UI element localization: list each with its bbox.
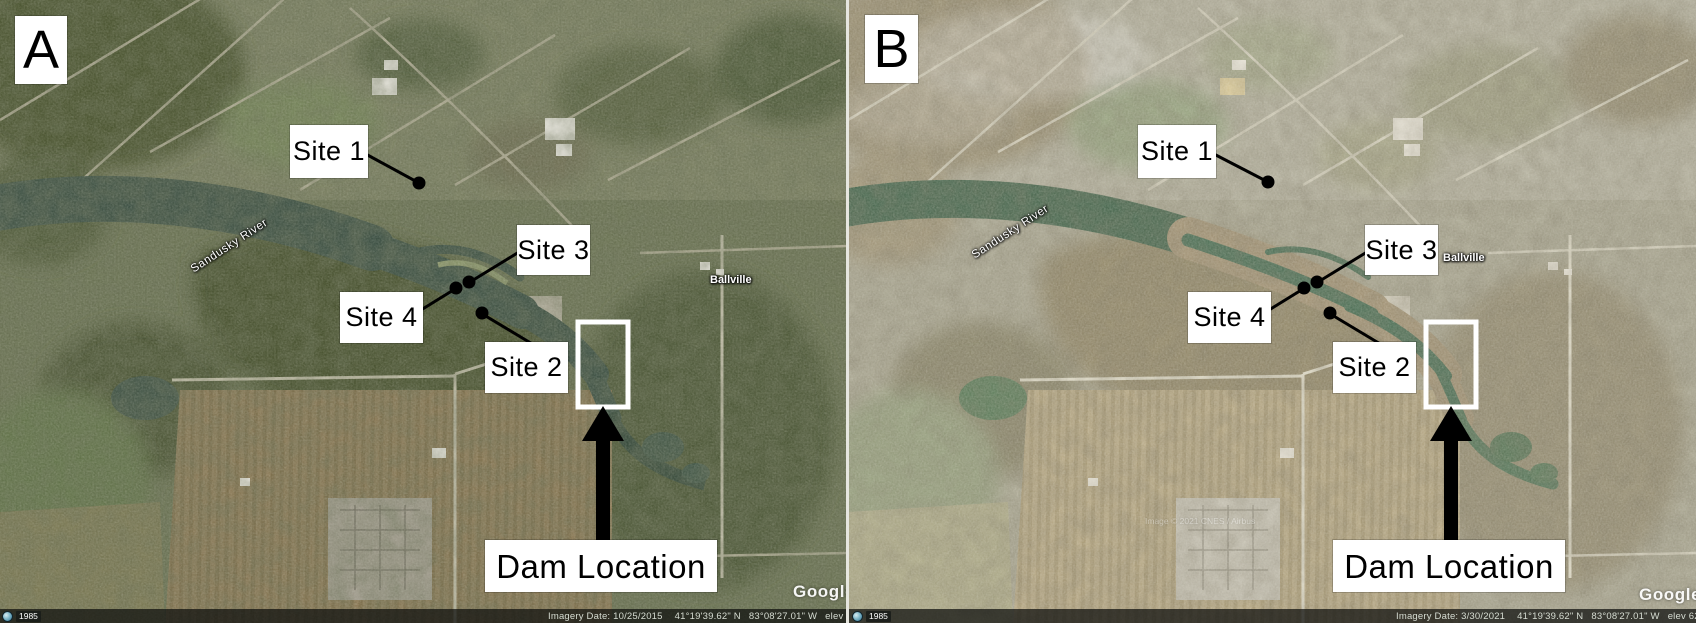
history-badge-b: 1985 <box>852 611 891 622</box>
latitude-b: 41°19'39.62" N <box>1517 611 1583 622</box>
panel-b: Sandusky River Ballville Image © 2021 CN… <box>848 0 1696 627</box>
panel-divider <box>846 0 849 627</box>
dam-location-label-b: Dam Location <box>1333 540 1565 592</box>
history-year-b: 1985 <box>866 611 891 622</box>
longitude-a: 83°08'27.01" W <box>749 611 817 622</box>
latitude-a: 41°19'39.62" N <box>675 611 741 622</box>
bottom-margin-strip <box>0 623 1696 627</box>
comparison-figure: Sandusky River Ballville Imagery Date: 1… <box>0 0 1696 627</box>
town-label-b: Ballville <box>1443 252 1485 264</box>
site-3-label-a: Site 3 <box>517 225 590 275</box>
site-3-label-b: Site 3 <box>1365 225 1438 275</box>
site-4-label-a: Site 4 <box>340 292 423 343</box>
history-year-a: 1985 <box>16 611 41 622</box>
site-2-label-b: Site 2 <box>1333 342 1416 393</box>
google-watermark-a: Google <box>793 582 848 602</box>
status-bar-b: Imagery Date: 3/30/2021 41°19'39.62" N 8… <box>848 609 1696 624</box>
imagery-date-b: Imagery Date: 3/30/2021 <box>1396 611 1505 622</box>
panel-a: Sandusky River Ballville Imagery Date: 1… <box>0 0 848 627</box>
elevation-a: elev 626 ft <box>825 611 848 622</box>
town-label-a: Ballville <box>710 274 752 286</box>
elevation-b: elev 626 ft <box>1668 611 1696 622</box>
satellite-imagery-a <box>0 0 848 627</box>
status-bar-a: Imagery Date: 10/25/2015 41°19'39.62" N … <box>0 609 848 624</box>
clock-icon-a <box>2 611 13 622</box>
longitude-b: 83°08'27.01" W <box>1591 611 1659 622</box>
site-4-label-b: Site 4 <box>1188 292 1271 343</box>
dam-location-label-a: Dam Location <box>485 540 717 592</box>
panel-label-a: A <box>15 16 67 84</box>
google-watermark-b: Google <box>1639 585 1696 605</box>
panel-label-b: B <box>865 15 918 83</box>
satellite-imagery-b <box>848 0 1696 627</box>
history-badge-a: 1985 <box>2 611 41 622</box>
site-1-label-a: Site 1 <box>290 125 368 178</box>
imagery-date-a: Imagery Date: 10/25/2015 <box>548 611 663 622</box>
clock-icon-b <box>852 611 863 622</box>
site-1-label-b: Site 1 <box>1138 125 1216 178</box>
site-2-label-a: Site 2 <box>485 342 568 393</box>
imagery-copyright-watermark-b: Image © 2021 CNES / Airbus <box>1145 516 1255 526</box>
